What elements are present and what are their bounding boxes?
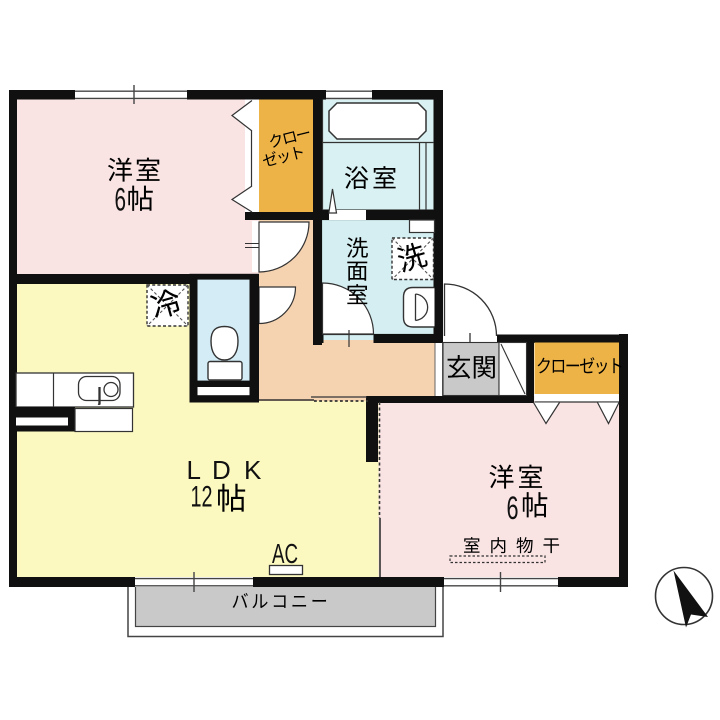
svg-text:K: K bbox=[244, 455, 262, 485]
svg-text:D: D bbox=[212, 455, 231, 485]
svg-text:6: 6 bbox=[115, 182, 127, 218]
svg-text:12: 12 bbox=[191, 481, 213, 514]
svg-text:AC: AC bbox=[272, 538, 298, 569]
svg-text:6: 6 bbox=[507, 490, 519, 526]
